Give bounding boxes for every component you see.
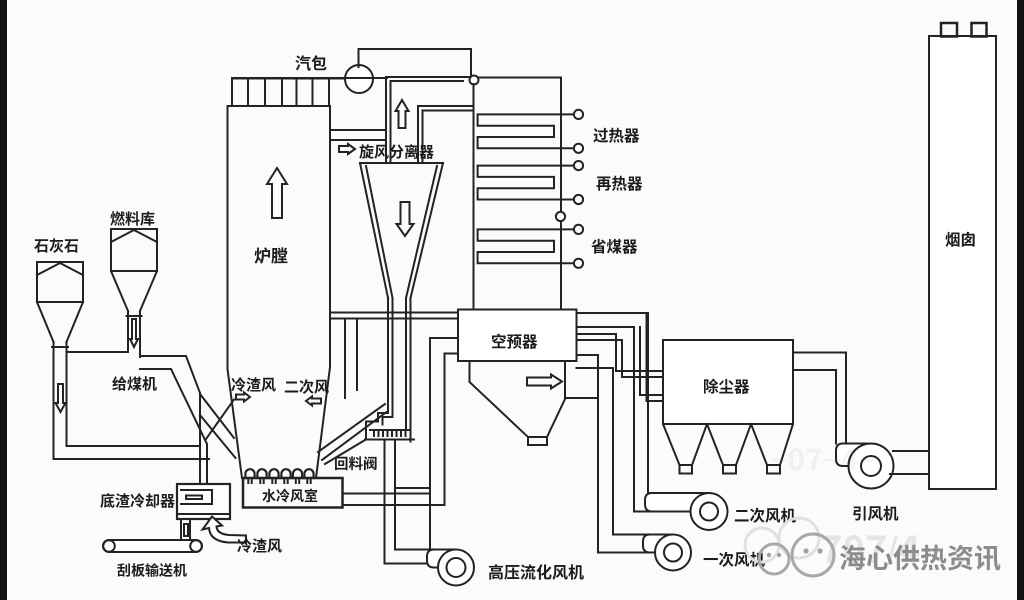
svg-text:除尘器: 除尘器: [703, 375, 750, 397]
svg-text:一次风机: 一次风机: [703, 548, 766, 570]
svg-text:~07~4~: ~07~4~: [770, 435, 876, 479]
svg-text:炉膛: 炉膛: [254, 242, 288, 267]
svg-text:回料阀: 回料阀: [334, 453, 378, 474]
svg-text:二次风: 二次风: [284, 376, 329, 397]
svg-text:冷渣风: 冷渣风: [231, 374, 276, 395]
svg-text:高压流化风机: 高压流化风机: [488, 559, 584, 583]
svg-text:石灰石: 石灰石: [34, 235, 79, 256]
svg-text:海心供热资讯: 海心供热资讯: [839, 537, 1001, 576]
svg-text:冷渣风: 冷渣风: [237, 535, 282, 556]
svg-text:旋风分离器: 旋风分离器: [359, 141, 434, 162]
svg-text:刮板输送机: 刮板输送机: [117, 561, 187, 581]
svg-text:汽包: 汽包: [295, 50, 327, 74]
svg-text:水冷风室: 水冷风室: [262, 486, 318, 506]
svg-text:底渣冷却器: 底渣冷却器: [100, 490, 175, 511]
svg-text:燃料库: 燃料库: [110, 208, 155, 229]
svg-text:省煤器: 省煤器: [591, 235, 638, 257]
svg-text:过热器: 过热器: [593, 124, 640, 146]
svg-text:烟囱: 烟囱: [945, 228, 976, 250]
svg-text:再热器: 再热器: [596, 172, 643, 194]
svg-text:给煤机: 给煤机: [112, 373, 157, 394]
svg-text:空预器: 空预器: [491, 330, 538, 352]
